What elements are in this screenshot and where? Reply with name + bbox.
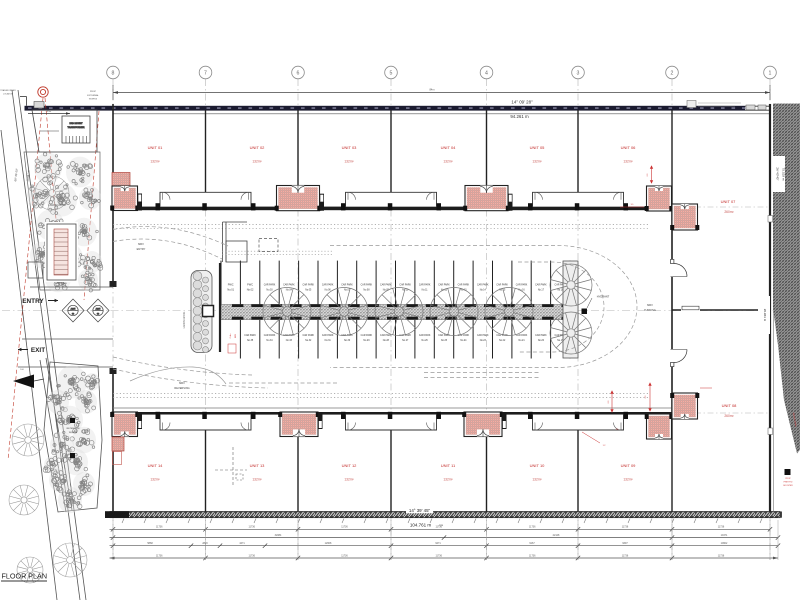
svg-text:11736: 11736 — [156, 554, 163, 557]
svg-text:WORKS: WORKS — [69, 432, 78, 434]
svg-text:UNIT 04: UNIT 04 — [441, 145, 457, 150]
svg-text:No.29: No.29 — [363, 340, 370, 342]
svg-text:CAR PARK: CAR PARK — [496, 284, 508, 287]
svg-text:CAR PARK: CAR PARK — [516, 334, 528, 337]
svg-text:10602: 10602 — [721, 542, 728, 545]
svg-text:UNIT 14: UNIT 14 — [148, 463, 164, 468]
svg-text:9167: 9167 — [529, 542, 535, 545]
svg-text:RETENTION: RETENTION — [67, 428, 80, 430]
svg-text:26°43'40": 26°43'40" — [776, 167, 780, 180]
svg-text:No.03: No.03 — [266, 290, 273, 292]
svg-text:132m²: 132m² — [150, 478, 160, 482]
svg-text:LANDSCAPING: LANDSCAPING — [183, 312, 186, 329]
svg-text:11736: 11736 — [249, 554, 256, 557]
svg-text:No.25: No.25 — [441, 340, 448, 342]
svg-text:CAR PARK: CAR PARK — [477, 334, 489, 337]
svg-text:132m²: 132m² — [344, 478, 354, 482]
svg-text:3: 3 — [577, 71, 580, 77]
svg-text:TRANSFORMER: TRANSFORMER — [0, 89, 16, 92]
svg-text:UNIT 09: UNIT 09 — [621, 463, 637, 468]
svg-text:132m²: 132m² — [344, 160, 354, 164]
svg-text:TURNING: TURNING — [644, 308, 656, 312]
svg-text:8.5m: 8.5m — [47, 111, 52, 113]
svg-text:PWC: PWC — [228, 284, 234, 287]
svg-text:132m²: 132m² — [623, 478, 633, 482]
svg-text:132m²: 132m² — [252, 160, 262, 164]
svg-text:2.4m: 2.4m — [230, 333, 232, 338]
svg-text:11736: 11736 — [341, 526, 348, 529]
svg-text:4471: 4471 — [239, 542, 245, 545]
svg-text:CAR PARK: CAR PARK — [302, 334, 314, 337]
svg-text:84m: 84m — [429, 88, 434, 92]
svg-text:No.17: No.17 — [538, 290, 545, 292]
svg-text:No.20: No.20 — [538, 340, 545, 342]
svg-text:CAR PARK: CAR PARK — [302, 284, 314, 287]
svg-text:CAR PARK: CAR PARK — [380, 334, 392, 337]
svg-text:No.10: No.10 — [402, 290, 409, 292]
svg-text:11736: 11736 — [718, 554, 725, 557]
svg-text:No.11: No.11 — [422, 290, 429, 292]
svg-text:132m²: 132m² — [252, 478, 262, 482]
svg-text:CAR PARK: CAR PARK — [380, 284, 392, 287]
svg-text:UNIT 05: UNIT 05 — [530, 145, 546, 150]
svg-text:22128: 22128 — [553, 534, 560, 537]
svg-text:No.02: No.02 — [247, 289, 254, 292]
svg-text:ENTRY: ENTRY — [137, 247, 146, 251]
svg-text:CAR PARK: CAR PARK — [322, 284, 334, 287]
svg-text:CAR PARK: CAR PARK — [283, 284, 295, 287]
svg-text:No.28: No.28 — [383, 340, 390, 342]
svg-text:REVERSING: REVERSING — [174, 386, 189, 390]
svg-text:75.529 m: 75.529 m — [782, 168, 786, 181]
svg-text:UNIT 12: UNIT 12 — [342, 463, 358, 468]
svg-text:132m²: 132m² — [532, 478, 542, 482]
svg-text:CAR PARK: CAR PARK — [361, 284, 373, 287]
svg-text:11736: 11736 — [436, 554, 443, 557]
svg-text:BIKE STORE: BIKE STORE — [55, 283, 68, 285]
svg-text:PWC: PWC — [247, 284, 253, 287]
svg-text:No.04: No.04 — [286, 290, 293, 292]
svg-text:PROP: PROP — [90, 91, 97, 93]
svg-text:5: 5 — [390, 71, 393, 77]
svg-text:No.26: No.26 — [422, 340, 429, 342]
svg-text:CAR PARK: CAR PARK — [458, 334, 470, 337]
svg-text:UNIT 13: UNIT 13 — [250, 463, 266, 468]
svg-text:PROP: PROP — [785, 478, 791, 480]
svg-text:11736: 11736 — [341, 554, 348, 557]
svg-text:CAR PARK: CAR PARK — [458, 284, 470, 287]
svg-text:CAR PARK: CAR PARK — [341, 284, 353, 287]
svg-text:26.961 m: 26.961 m — [763, 309, 767, 322]
svg-text:CAR PARK: CAR PARK — [419, 334, 431, 337]
svg-text:6: 6 — [297, 71, 300, 77]
svg-text:11736: 11736 — [249, 526, 256, 529]
svg-text:No.14: No.14 — [480, 290, 487, 292]
svg-text:11736: 11736 — [622, 526, 629, 529]
svg-text:UNIT 08: UNIT 08 — [722, 403, 738, 408]
svg-text:CAR PARK: CAR PARK — [535, 334, 547, 337]
svg-text:32084: 32084 — [275, 534, 282, 537]
svg-text:7: 7 — [204, 71, 207, 77]
svg-text:9397: 9397 — [622, 542, 628, 545]
svg-text:No.35: No.35 — [247, 340, 254, 342]
svg-text:WORKS: WORKS — [89, 99, 98, 101]
svg-text:No.31: No.31 — [325, 340, 332, 342]
svg-text:No.30: No.30 — [344, 340, 351, 342]
svg-text:BOOSTER: BOOSTER — [783, 485, 793, 487]
svg-text:132m²: 132m² — [150, 160, 160, 164]
svg-text:4: 4 — [485, 71, 488, 77]
svg-text:No.06: No.06 — [325, 290, 332, 292]
svg-text:LANDSCAPING: LANDSCAPING — [48, 204, 65, 207]
svg-text:260m²: 260m² — [724, 210, 734, 214]
svg-text:11736: 11736 — [436, 526, 443, 529]
svg-text:UNIT 11: UNIT 11 — [441, 463, 456, 468]
svg-text:12608: 12608 — [325, 542, 332, 545]
svg-text:UNIT 02: UNIT 02 — [250, 145, 266, 150]
svg-text:132m²: 132m² — [532, 160, 542, 164]
svg-text:1: 1 — [769, 71, 772, 77]
svg-text:MRV: MRV — [647, 303, 653, 307]
svg-text:No.23: No.23 — [480, 340, 487, 342]
svg-text:FLOOR PLAN: FLOOR PLAN — [2, 572, 48, 581]
svg-text:No.27: No.27 — [402, 340, 409, 342]
svg-text:EXTERNAL: EXTERNAL — [87, 94, 99, 97]
svg-text:No.15: No.15 — [499, 290, 506, 292]
svg-text:UNIT 03: UNIT 03 — [342, 145, 358, 150]
svg-text:No.01: No.01 — [227, 289, 234, 292]
svg-text:UNIT 07: UNIT 07 — [721, 199, 737, 204]
svg-text:CAR PARK: CAR PARK — [477, 284, 489, 287]
svg-text:No.05: No.05 — [305, 290, 312, 292]
svg-text:CAR PARK: CAR PARK — [438, 334, 450, 337]
svg-text:11736: 11736 — [529, 554, 536, 557]
svg-text:UNIT 06: UNIT 06 — [621, 145, 637, 150]
svg-text:11736: 11736 — [156, 526, 163, 529]
svg-text:No.08: No.08 — [363, 290, 370, 292]
svg-text:CAR PARK: CAR PARK — [399, 284, 411, 287]
svg-text:CAR PARK: CAR PARK — [516, 284, 528, 287]
svg-text:CAR PARK: CAR PARK — [264, 284, 276, 287]
svg-text:8: 8 — [112, 71, 115, 77]
svg-text:LOCATION: LOCATION — [3, 93, 14, 96]
svg-text:CAR PARK: CAR PARK — [264, 334, 276, 337]
svg-text:104.761 m: 104.761 m — [410, 522, 432, 527]
svg-text:11736: 11736 — [622, 554, 629, 557]
svg-text:CAR PARK: CAR PARK — [244, 334, 256, 337]
svg-text:9471: 9471 — [435, 542, 441, 545]
svg-text:132m²: 132m² — [443, 478, 453, 482]
svg-text:No.22: No.22 — [499, 340, 506, 342]
svg-text:CAR PARK: CAR PARK — [438, 284, 450, 287]
svg-text:No.32: No.32 — [305, 340, 312, 342]
svg-text:UNIT 01: UNIT 01 — [148, 145, 164, 150]
svg-text:No.34: No.34 — [266, 340, 273, 342]
svg-text:94.261 m: 94.261 m — [510, 114, 529, 119]
svg-text:PAD MOUNT: PAD MOUNT — [70, 122, 84, 125]
svg-text:No.21: No.21 — [518, 340, 525, 342]
svg-text:FIRE HYD: FIRE HYD — [784, 482, 793, 484]
svg-text:11736: 11736 — [529, 526, 536, 529]
svg-text:260m²: 260m² — [724, 414, 734, 418]
svg-text:11736: 11736 — [718, 526, 725, 529]
svg-text:MRV: MRV — [138, 242, 144, 246]
svg-text:14° 09' 28": 14° 09' 28" — [511, 99, 533, 104]
svg-text:132m²: 132m² — [443, 160, 453, 164]
svg-text:14° 39' 45": 14° 39' 45" — [409, 508, 431, 513]
svg-text:CAR PARK: CAR PARK — [535, 284, 547, 287]
svg-text:UNIT 10: UNIT 10 — [530, 463, 546, 468]
svg-text:No.24: No.24 — [460, 340, 467, 342]
svg-text:5868: 5868 — [147, 542, 153, 545]
svg-text:CAR PARK: CAR PARK — [361, 334, 373, 337]
svg-text:CAR PARK: CAR PARK — [419, 284, 431, 287]
svg-text:CAR PARK: CAR PARK — [322, 334, 334, 337]
svg-text:EXIT: EXIT — [31, 347, 45, 354]
svg-text:10471: 10471 — [721, 534, 728, 537]
svg-text:No.33: No.33 — [286, 340, 293, 342]
svg-text:132m²: 132m² — [623, 160, 633, 164]
svg-text:2: 2 — [671, 71, 674, 77]
svg-text:TRANSFORMER: TRANSFORMER — [68, 126, 85, 129]
svg-text:ENTRY: ENTRY — [22, 298, 44, 305]
